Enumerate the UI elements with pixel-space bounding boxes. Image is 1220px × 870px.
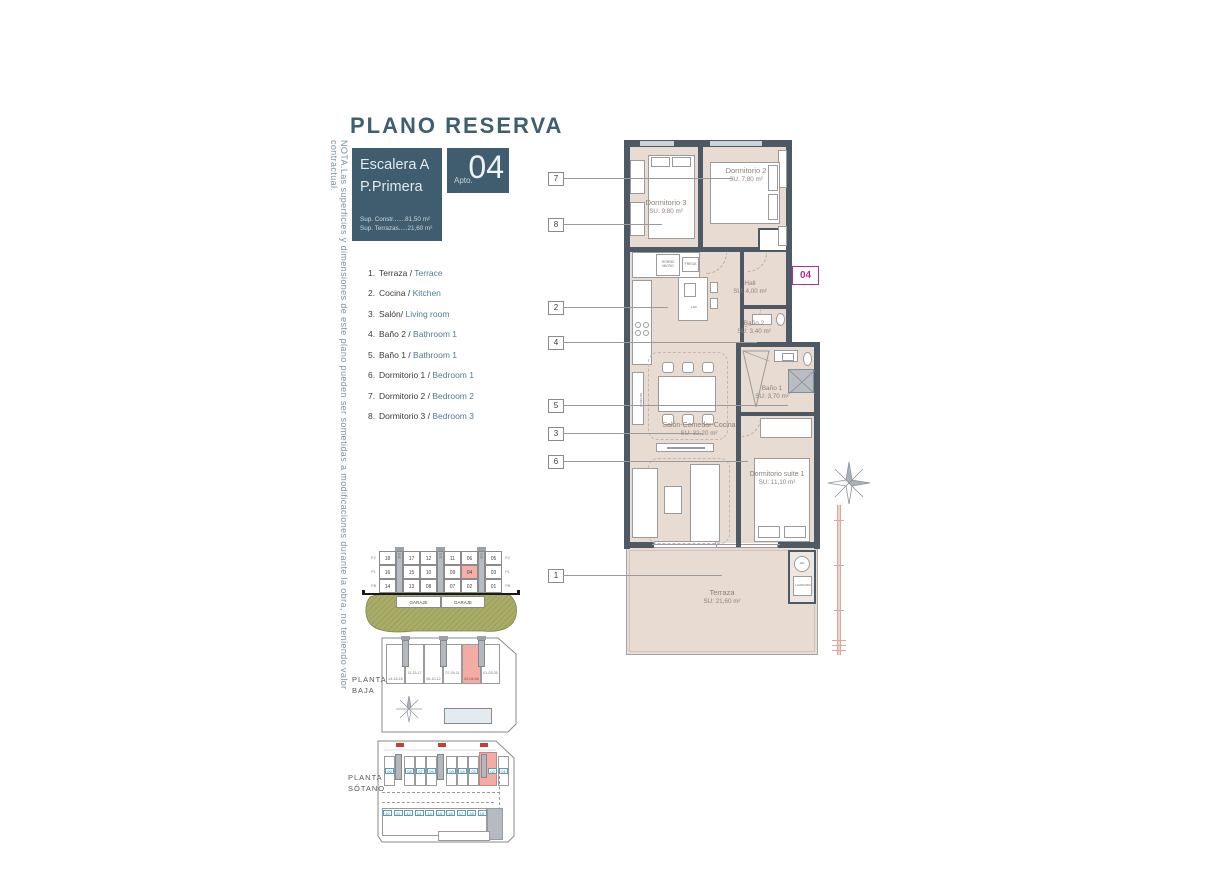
- lane-line: [382, 792, 500, 793]
- unit-cell: 17: [403, 551, 420, 565]
- unit-cell: 13: [403, 579, 420, 593]
- parking-number: 17: [457, 810, 466, 816]
- leader-line: [563, 433, 703, 434]
- ac-unit: AA: [794, 556, 810, 572]
- unit-cell: 16: [379, 565, 396, 579]
- compass-icon: [394, 694, 424, 724]
- lane-line: [382, 802, 494, 803]
- apto-number: 04: [468, 149, 504, 186]
- hob-burner: [643, 322, 649, 328]
- chair: [662, 362, 674, 373]
- pillow: [758, 526, 780, 538]
- leader-line: [563, 342, 757, 343]
- parking-number: 13: [415, 810, 424, 816]
- room-label-hall: HallSU: 4,00 m²: [726, 280, 774, 297]
- wall: [738, 412, 818, 416]
- level-label: P1: [505, 569, 510, 574]
- legend-item: 6.Dormitorio 1 / Bedroom 1: [368, 370, 543, 384]
- wardrobe: [630, 160, 645, 194]
- callout-6: 6: [548, 455, 564, 469]
- compass-icon: [826, 460, 872, 506]
- dishwasher-label: LAV: [687, 306, 701, 310]
- parking-number: 16: [446, 810, 455, 816]
- ground-line-end: [362, 590, 365, 595]
- parking-number: 15: [436, 810, 445, 816]
- stair-core: [440, 640, 447, 667]
- parking-number: 18: [467, 810, 476, 816]
- wall-bedroom-divider: [698, 147, 703, 252]
- unit-cell: 12: [420, 551, 437, 565]
- bathroom2-toilet: [776, 313, 785, 326]
- measure-tick: [834, 565, 844, 566]
- parking-number: 07: [416, 768, 425, 774]
- apartment-badge: 04: [792, 266, 819, 285]
- washing-machine: LAVADORA: [793, 576, 812, 596]
- callout-5: 5: [548, 399, 564, 413]
- page-title: PLANO RESERVA: [350, 113, 563, 139]
- window: [640, 141, 674, 146]
- pillow: [651, 157, 670, 167]
- leader-line: [563, 224, 662, 225]
- sup-terrazas: Sup. Terrazas.....21,60 m²: [360, 224, 442, 233]
- leader-line: [563, 178, 733, 179]
- unit-cell: 10: [420, 565, 437, 579]
- unit-cell: 02: [461, 579, 478, 593]
- bed: [648, 155, 695, 239]
- planta-label: P.Primera: [360, 176, 442, 198]
- parking-number: 09: [385, 768, 394, 774]
- chair: [702, 362, 714, 373]
- ground-line: [362, 593, 520, 595]
- sup-constr: Sup. Constr.......81,50 m²: [360, 215, 442, 224]
- chair: [682, 362, 694, 373]
- parking-number: 12: [404, 810, 413, 816]
- parking-number: 06: [427, 768, 436, 774]
- measure-tick: [832, 640, 846, 641]
- parking-number: 03: [469, 768, 478, 774]
- leader-line: [563, 307, 668, 308]
- room-label-salon: Salón-Comedor-CocinaSU: 32,20 m²: [654, 421, 744, 438]
- hob-burner: [643, 330, 649, 336]
- dining-table: [658, 376, 716, 412]
- kitchen-island: LAV: [678, 277, 708, 321]
- floor-plan: HORNO MICRO FREGA LAV NEVERA: [548, 140, 878, 675]
- hob-burner: [635, 330, 641, 336]
- unit-cell: 09: [444, 565, 461, 579]
- unit-cell: 14: [379, 579, 396, 593]
- parking-number: 04: [458, 768, 467, 774]
- leader-line: [563, 461, 748, 462]
- basin: [782, 353, 794, 361]
- parking-number: 02: [488, 768, 497, 774]
- coffee-table: [664, 486, 682, 514]
- unit-cell: 08: [420, 579, 437, 593]
- wall: [778, 542, 820, 548]
- legend-item: 7.Dormitorio 2 / Bedroom 2: [368, 391, 543, 405]
- stair-core: [395, 754, 402, 780]
- legend-item: 5.Baño 1 / Bathroom 1: [368, 350, 543, 364]
- measure-tick: [834, 520, 844, 521]
- plano-reserva-sheet: NOTA.Las superficies y dimensiones de es…: [0, 0, 1220, 870]
- stair-core: [402, 640, 409, 667]
- legend-item: 1.Terraza / Terrace: [368, 268, 543, 282]
- wall: [624, 542, 654, 548]
- level-label: P2: [505, 555, 510, 560]
- unit-cell: 07: [444, 579, 461, 593]
- measure-tick: [832, 645, 846, 646]
- header-apto-box: Apto. 04: [447, 148, 509, 193]
- unit-cell: 03: [485, 565, 502, 579]
- stair-core: ESC: [478, 551, 485, 593]
- sink-cabinet: FREGA: [682, 257, 699, 272]
- level-label: P2: [371, 555, 376, 560]
- callout-4: 4: [548, 336, 564, 350]
- room-label-terraza: TerrazaSU: 21,60 m²: [682, 588, 762, 606]
- parking-number: 05: [447, 768, 456, 774]
- leader-line: [563, 575, 722, 576]
- callout-3: 3: [548, 427, 564, 441]
- callout-7: 7: [548, 172, 564, 186]
- legend-item: 8.Dormitorio 3 / Bedroom 3: [368, 411, 543, 425]
- washing-machine-label: LAVADORA: [794, 584, 812, 587]
- pillow: [672, 157, 691, 167]
- parking-number: 19: [478, 810, 487, 816]
- pillow: [784, 526, 806, 538]
- escalera-label: Escalera A: [360, 154, 442, 176]
- vertical-note: NOTA.Las superficies y dimensiones de es…: [329, 140, 349, 740]
- unit-cell: 15: [403, 565, 420, 579]
- parking-number: 01: [499, 768, 508, 774]
- callout-2: 2: [548, 301, 564, 315]
- level-label: P1: [371, 569, 376, 574]
- island-sink: [684, 283, 696, 297]
- hob-burner: [635, 322, 641, 328]
- pool: [444, 708, 492, 724]
- callout-8: 8: [548, 218, 564, 232]
- nightstand: [778, 226, 787, 246]
- stair-core: [481, 754, 487, 778]
- measure-tick: [832, 650, 846, 651]
- tv-console: [656, 443, 714, 452]
- unit-cell: 11: [444, 551, 461, 565]
- bathroom1-sink: [774, 350, 798, 362]
- stair-tag: [438, 743, 446, 747]
- level-label: PB: [505, 583, 510, 588]
- measure-tick: [834, 610, 844, 611]
- stool: [710, 298, 718, 309]
- unit-cell: 06: [461, 551, 478, 565]
- legend-item: 3.Salón/ Living room: [368, 309, 543, 323]
- unit-cell: 01: [485, 579, 502, 593]
- leader-line: [563, 405, 788, 406]
- level-label: PB: [371, 583, 376, 588]
- unit-cell: 18: [379, 551, 396, 565]
- callout-1: 1: [548, 569, 564, 583]
- stair-core: [437, 754, 444, 780]
- stair-core: [478, 640, 485, 667]
- room-label-dorm2: Dormitorio 2SU: 7,80 m²: [714, 166, 778, 184]
- sliding-door-panel: [716, 544, 778, 548]
- unit-cell: 05: [485, 551, 502, 565]
- ground-line-end: [517, 590, 520, 595]
- stair-core: ESC: [437, 551, 444, 593]
- sofa: [632, 468, 658, 538]
- stool: [710, 282, 718, 293]
- room-label-suite: Dormitorio suite 1SU: 11,10 m²: [744, 470, 810, 487]
- unit-cell-highlight: 04: [461, 565, 478, 579]
- room-label-bano2: Baño 2SU: 3,40 m²: [732, 320, 776, 337]
- building-section: 18 17 12 11 06 05 16 15 10 09 04 03 14 1…: [362, 543, 520, 638]
- tv: [667, 447, 705, 449]
- header-escalera-box: Escalera A P.Primera Sup. Constr.......8…: [352, 148, 442, 241]
- legend-item: 2.Cocina / Kitchen: [368, 288, 543, 302]
- room-label-bano1: Baño 1SU: 3,70 m²: [748, 385, 796, 402]
- stair-core: ESC: [396, 551, 403, 593]
- measure-strip: [837, 505, 841, 655]
- planta-baja: PLANTABAJA 14-16-18 13-15-17 08-10-12 07…: [352, 630, 522, 738]
- parking-number: 11: [394, 810, 403, 816]
- storage-row: [438, 831, 490, 841]
- window: [710, 141, 762, 146]
- stair-tag: [396, 743, 404, 747]
- legend-item: 4.Baño 2 / Bathroom 1: [368, 329, 543, 343]
- wall: [740, 305, 790, 309]
- chaise-sofa: [690, 464, 720, 542]
- planta-sotano: PLANTASÓTANO 09 08 07 06 05 04 03 02 01: [348, 736, 526, 848]
- pillow: [768, 194, 778, 220]
- garage-cell: GARAJE: [441, 596, 485, 608]
- parking-number: 08: [405, 768, 414, 774]
- room-label-dorm3: Dormitorio 3SU: 9,80 m²: [634, 198, 698, 216]
- fridge: NEVERA: [632, 372, 644, 425]
- ac-label: AA: [795, 562, 809, 566]
- garage-cell: GARAJE: [396, 596, 441, 608]
- parking-number: 10: [383, 810, 392, 816]
- stair-tag: [480, 743, 488, 747]
- fridge-label: NEVERA: [636, 379, 642, 421]
- oven-micro: HORNO MICRO: [656, 254, 680, 276]
- bathroom1-toilet: [803, 352, 812, 366]
- terrace-closet: AA LAVADORA: [788, 550, 816, 604]
- suite-wardrobe: [760, 418, 812, 438]
- parking-number: 14: [425, 810, 434, 816]
